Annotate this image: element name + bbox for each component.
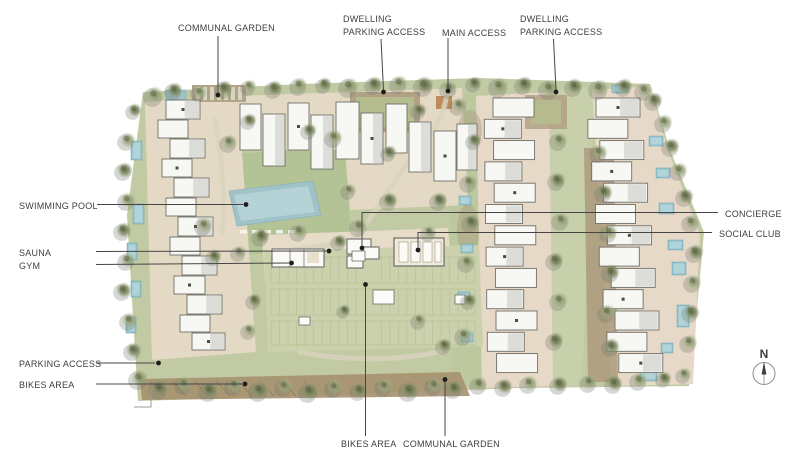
label-bikes-area-bottom: BIKES AREA: [341, 438, 397, 451]
leader-concierge: [362, 213, 718, 246]
leader-social-club: [418, 233, 712, 248]
annotation-overlay: [0, 0, 800, 458]
label-concierge: CONCIERGE: [725, 208, 782, 221]
label-swimming-pool: SWIMMING POOL: [19, 200, 98, 213]
label-line: DWELLING: [520, 14, 569, 24]
leader-dwelling-parking-left: [381, 39, 384, 90]
leader-sauna: [96, 251, 326, 252]
label-bikes-area-left: BIKES AREA: [19, 379, 75, 392]
label-communal-garden-bottom: COMMUNAL GARDEN: [403, 438, 500, 451]
label-dwelling-parking-access-left: DWELLINGPARKING ACCESS: [343, 13, 433, 39]
label-line: PARKING ACCESS: [520, 27, 602, 37]
compass-needle-north: [762, 362, 767, 375]
label-sauna: SAUNA: [19, 247, 51, 260]
leader-dots: [156, 89, 558, 387]
leader-dwelling-parking-right: [554, 39, 557, 90]
label-main-access: MAIN ACCESS: [442, 27, 506, 40]
leader-gym: [96, 263, 289, 265]
label-line: PARKING ACCESS: [343, 27, 425, 37]
label-gym: GYM: [19, 260, 40, 273]
compass: [753, 362, 775, 386]
label-parking-access: PARKING ACCESS: [19, 358, 101, 371]
compass-n-label: N: [756, 347, 772, 361]
label-communal-garden-top: COMMUNAL GARDEN: [178, 22, 275, 35]
label-social-club: SOCIAL CLUB: [719, 228, 781, 241]
label-dwelling-parking-access-right: DWELLINGPARKING ACCESS: [520, 13, 610, 39]
siteplan-figure: COMMUNAL GARDEN DWELLINGPARKING ACCESS M…: [0, 0, 800, 458]
boundary-corner-mark: [134, 389, 151, 407]
label-line: DWELLING: [343, 14, 392, 24]
